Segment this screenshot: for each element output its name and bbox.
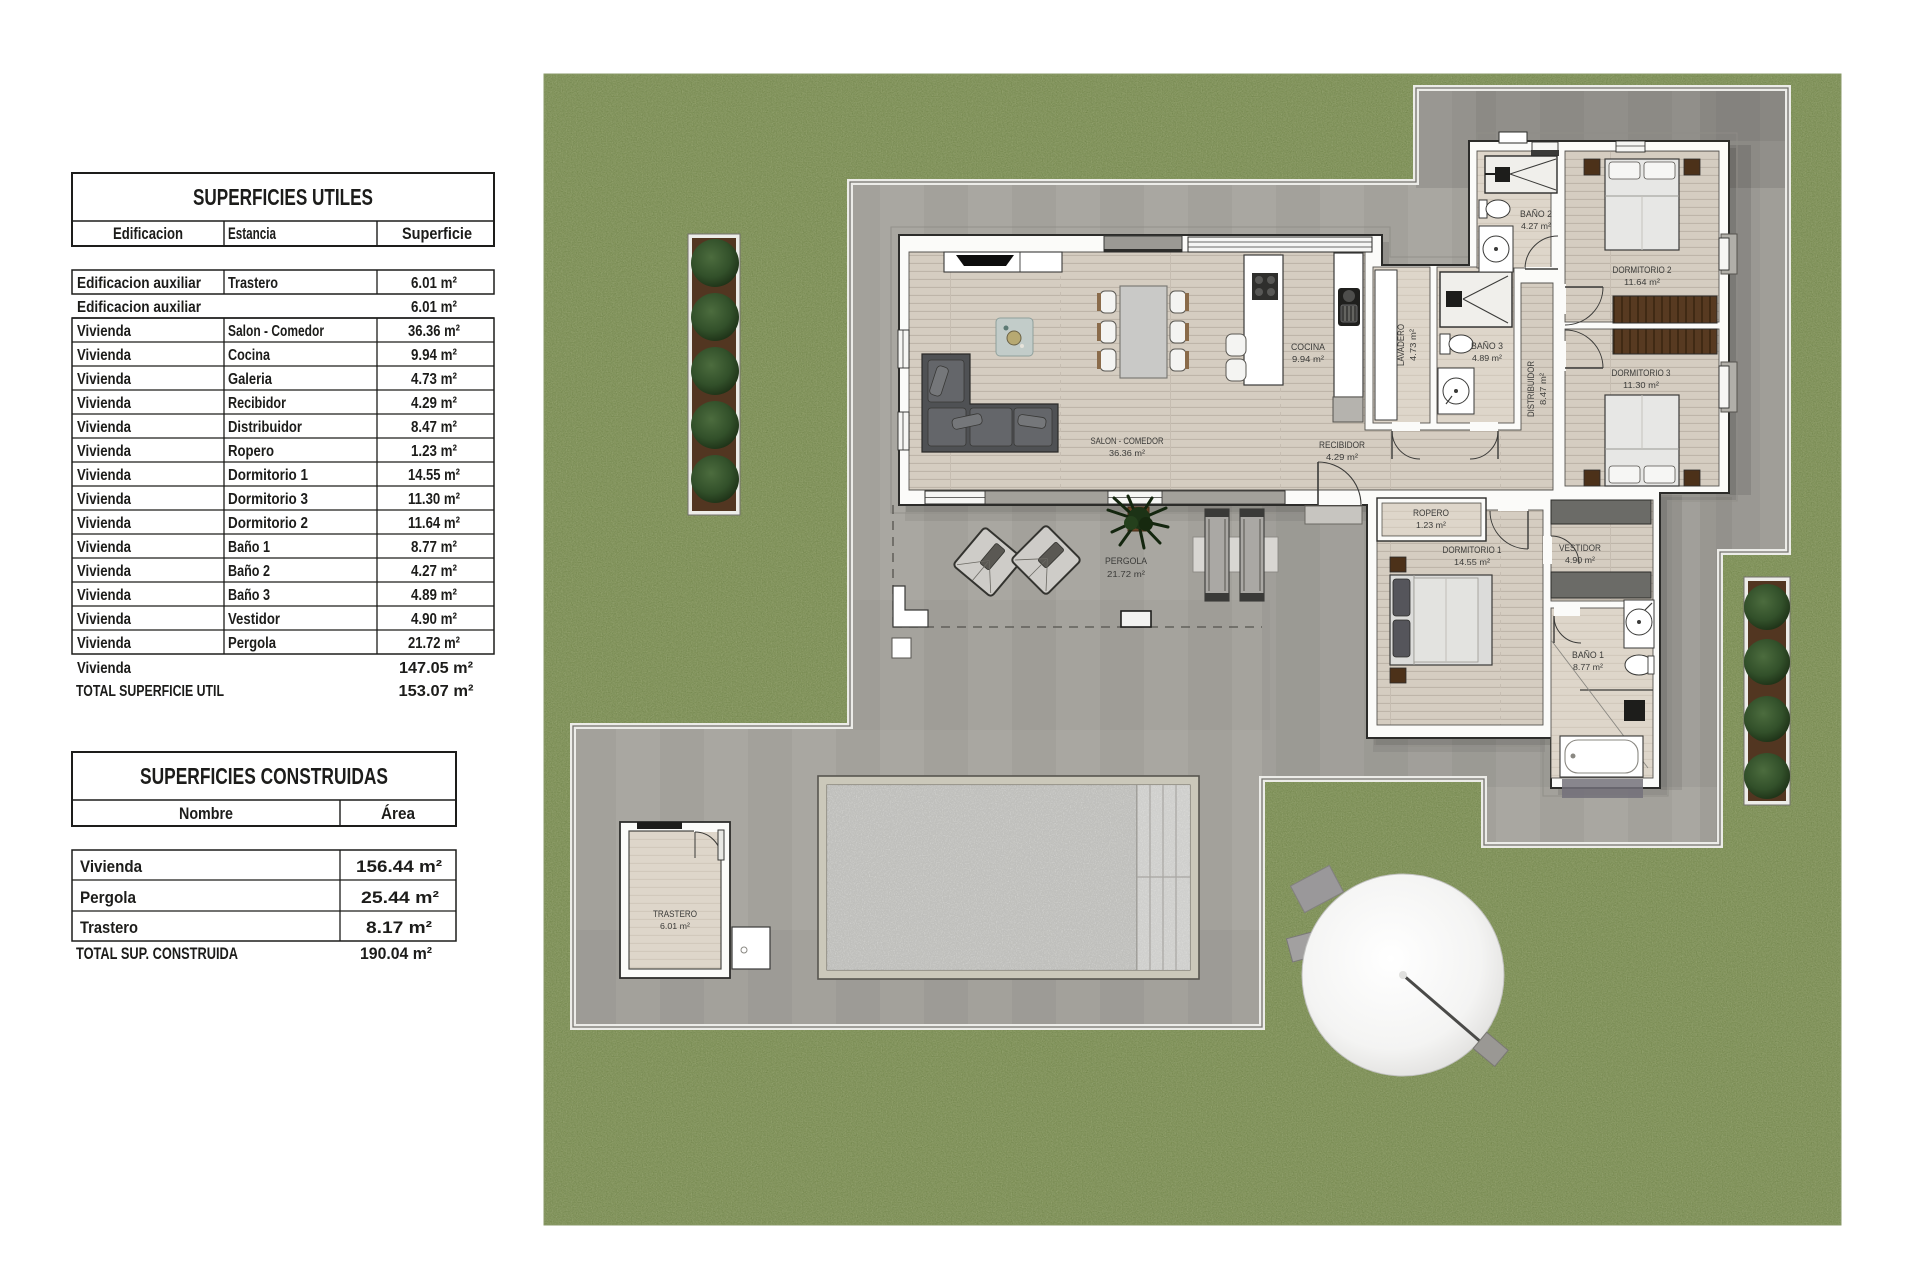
- svg-text:Vivienda: Vivienda: [77, 347, 131, 364]
- svg-text:4.73 m²: 4.73 m²: [1408, 329, 1418, 361]
- svg-text:21.72 m²: 21.72 m²: [408, 635, 460, 652]
- svg-text:SALON - COMEDOR: SALON - COMEDOR: [1091, 436, 1164, 446]
- svg-text:36.36 m²: 36.36 m²: [1109, 448, 1145, 458]
- svg-text:Nombre: Nombre: [179, 804, 233, 823]
- svg-text:TRASTERO: TRASTERO: [653, 909, 697, 919]
- svg-text:Vivienda: Vivienda: [77, 515, 131, 532]
- svg-text:4.73 m²: 4.73 m²: [411, 371, 457, 388]
- svg-text:Dormitorio 2: Dormitorio 2: [228, 515, 308, 532]
- svg-text:1.23 m²: 1.23 m²: [411, 443, 457, 460]
- svg-text:21.72 m²: 21.72 m²: [1107, 569, 1145, 579]
- svg-text:BAÑO 1: BAÑO 1: [1572, 650, 1604, 660]
- svg-text:Pergola: Pergola: [228, 635, 276, 652]
- svg-text:SUPERFICIES CONSTRUIDAS: SUPERFICIES CONSTRUIDAS: [140, 763, 388, 789]
- svg-text:Vivienda: Vivienda: [80, 857, 142, 876]
- svg-text:14.55 m²: 14.55 m²: [1454, 557, 1490, 567]
- svg-text:4.89 m²: 4.89 m²: [411, 587, 457, 604]
- svg-text:6.01 m²: 6.01 m²: [660, 921, 690, 931]
- svg-text:4.90 m²: 4.90 m²: [411, 611, 457, 628]
- svg-text:4.90 m²: 4.90 m²: [1565, 555, 1595, 565]
- svg-text:DORMITORIO 3: DORMITORIO 3: [1612, 368, 1671, 378]
- svg-text:Vivienda: Vivienda: [77, 419, 131, 436]
- svg-text:TOTAL SUPERFICIE UTIL: TOTAL SUPERFICIE UTIL: [76, 683, 224, 700]
- svg-text:Vivienda: Vivienda: [77, 395, 131, 412]
- svg-text:DORMITORIO 2: DORMITORIO 2: [1613, 265, 1672, 275]
- svg-text:11.30 m²: 11.30 m²: [408, 491, 460, 508]
- svg-text:BAÑO 3: BAÑO 3: [1471, 341, 1503, 351]
- svg-text:8.77 m²: 8.77 m²: [1573, 662, 1603, 672]
- svg-text:8.77 m²: 8.77 m²: [411, 539, 457, 556]
- svg-text:8.47 m²: 8.47 m²: [411, 419, 457, 436]
- svg-text:DORMITORIO 1: DORMITORIO 1: [1443, 545, 1502, 555]
- svg-text:153.07 m²: 153.07 m²: [399, 683, 474, 700]
- svg-text:Baño 1: Baño 1: [228, 539, 270, 556]
- svg-text:Vivienda: Vivienda: [77, 491, 131, 508]
- svg-text:COCINA: COCINA: [1291, 342, 1325, 352]
- svg-text:Vivienda: Vivienda: [77, 371, 131, 388]
- svg-text:RECIBIDOR: RECIBIDOR: [1319, 440, 1365, 450]
- svg-text:Galeria: Galeria: [228, 371, 272, 388]
- svg-text:Cocina: Cocina: [228, 347, 270, 364]
- svg-text:Ropero: Ropero: [228, 443, 274, 460]
- svg-text:Edificacion auxiliar: Edificacion auxiliar: [77, 299, 201, 316]
- svg-text:Edificacion: Edificacion: [113, 224, 183, 243]
- svg-text:TOTAL SUP. CONSTRUIDA: TOTAL SUP. CONSTRUIDA: [76, 944, 238, 963]
- svg-text:25.44 m²: 25.44 m²: [361, 888, 439, 907]
- svg-text:4.29 m²: 4.29 m²: [1326, 452, 1358, 462]
- svg-text:Dormitorio 3: Dormitorio 3: [228, 491, 308, 508]
- svg-text:36.36 m²: 36.36 m²: [408, 323, 460, 340]
- svg-text:Vivienda: Vivienda: [77, 443, 131, 460]
- svg-text:6.01 m²: 6.01 m²: [411, 299, 457, 316]
- svg-text:Estancia: Estancia: [228, 224, 276, 243]
- svg-text:4.29 m²: 4.29 m²: [411, 395, 457, 412]
- svg-text:Trastero: Trastero: [228, 275, 278, 292]
- svg-text:9.94 m²: 9.94 m²: [411, 347, 457, 364]
- svg-text:Área: Área: [381, 804, 415, 823]
- svg-text:6.01 m²: 6.01 m²: [411, 275, 457, 292]
- svg-text:Edificacion auxiliar: Edificacion auxiliar: [77, 275, 201, 292]
- svg-text:Distribuidor: Distribuidor: [228, 419, 302, 436]
- svg-text:Vivienda: Vivienda: [77, 539, 131, 556]
- svg-text:8.17 m²: 8.17 m²: [366, 918, 432, 937]
- svg-text:9.94 m²: 9.94 m²: [1292, 354, 1324, 364]
- svg-text:Vivienda: Vivienda: [77, 635, 131, 652]
- svg-text:Superficie: Superficie: [402, 224, 472, 243]
- svg-text:Vivienda: Vivienda: [77, 611, 131, 628]
- svg-text:SUPERFICIES UTILES: SUPERFICIES UTILES: [193, 184, 373, 210]
- svg-text:11.64 m²: 11.64 m²: [408, 515, 460, 532]
- svg-text:Trastero: Trastero: [80, 918, 138, 937]
- svg-text:LAVADERO: LAVADERO: [1396, 324, 1406, 366]
- svg-text:Pergola: Pergola: [80, 888, 136, 907]
- svg-text:14.55 m²: 14.55 m²: [408, 467, 460, 484]
- svg-text:Recibidor: Recibidor: [228, 395, 286, 412]
- svg-text:Dormitorio 1: Dormitorio 1: [228, 467, 308, 484]
- svg-text:8.47 m²: 8.47 m²: [1538, 373, 1548, 405]
- svg-text:4.27 m²: 4.27 m²: [411, 563, 457, 580]
- svg-text:PERGOLA: PERGOLA: [1105, 556, 1147, 566]
- svg-text:Vivienda: Vivienda: [77, 467, 131, 484]
- svg-text:1.23 m²: 1.23 m²: [1416, 520, 1446, 530]
- svg-text:4.89 m²: 4.89 m²: [1472, 353, 1502, 363]
- svg-text:VESTIDOR: VESTIDOR: [1559, 543, 1601, 553]
- svg-text:156.44 m²: 156.44 m²: [356, 857, 442, 876]
- svg-text:ROPERO: ROPERO: [1413, 508, 1449, 518]
- svg-text:4.27 m²: 4.27 m²: [1521, 221, 1551, 231]
- svg-text:11.64 m²: 11.64 m²: [1624, 277, 1660, 287]
- svg-text:Vivienda: Vivienda: [77, 587, 131, 604]
- svg-text:Baño 2: Baño 2: [228, 563, 270, 580]
- svg-text:190.04 m²: 190.04 m²: [360, 944, 432, 963]
- svg-text:BAÑO 2: BAÑO 2: [1520, 209, 1552, 219]
- svg-text:Vivienda: Vivienda: [77, 563, 131, 580]
- svg-text:Vestidor: Vestidor: [228, 611, 280, 628]
- svg-text:Vivienda: Vivienda: [77, 660, 131, 677]
- svg-text:11.30 m²: 11.30 m²: [1623, 380, 1659, 390]
- svg-text:Vivienda: Vivienda: [77, 323, 131, 340]
- svg-text:Baño 3: Baño 3: [228, 587, 270, 604]
- svg-text:147.05 m²: 147.05 m²: [399, 660, 473, 677]
- svg-text:DISTRIBUIDOR: DISTRIBUIDOR: [1526, 361, 1536, 417]
- svg-text:Salon - Comedor: Salon - Comedor: [228, 323, 324, 340]
